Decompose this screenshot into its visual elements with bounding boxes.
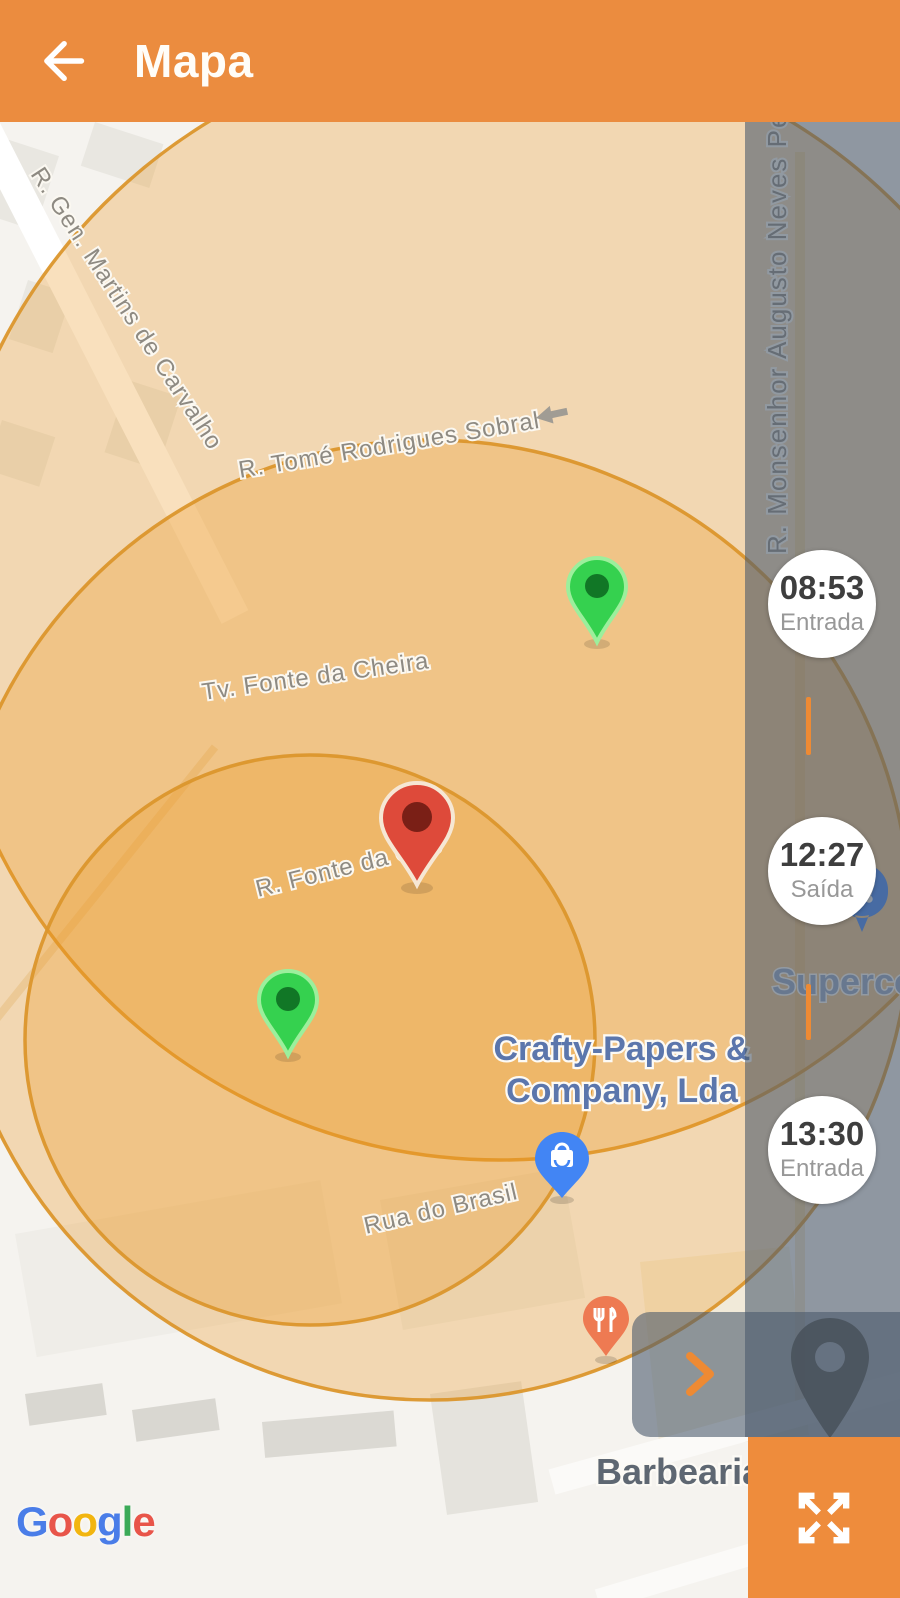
event-time: 13:30 (780, 1117, 864, 1152)
google-logo-letter: o (72, 1498, 97, 1545)
map-screen: R. Gen. Martins de Carvalho R. Tomé Rodr… (0, 0, 900, 1598)
google-logo-letter: o (48, 1498, 73, 1545)
poi-label-shop-line2[interactable]: Company, Lda (506, 1072, 739, 1110)
fullscreen-button[interactable] (748, 1437, 900, 1598)
page-title: Mapa (134, 34, 254, 88)
place-pin-icon (788, 1316, 872, 1440)
arrow-left-icon (36, 35, 88, 87)
event-time: 08:53 (780, 571, 864, 606)
google-logo-letter: g (97, 1498, 122, 1545)
poi-label-shop-line1[interactable]: Crafty-Papers & (494, 1030, 751, 1068)
app-bar: Mapa (0, 0, 900, 122)
chevron-right-icon (670, 1344, 730, 1404)
timeline-event-3[interactable]: 13:30 Entrada (768, 1096, 876, 1204)
event-label: Saída (791, 876, 854, 904)
google-logo-letter: G (16, 1498, 48, 1545)
event-label: Entrada (780, 1155, 864, 1183)
timeline-connector-2 (806, 984, 811, 1040)
timeline-event-1[interactable]: 08:53 Entrada (768, 550, 876, 658)
google-logo[interactable]: Google (16, 1498, 155, 1546)
expand-timeline-button[interactable] (670, 1344, 730, 1404)
fullscreen-expand-icon (786, 1480, 862, 1556)
place-pin[interactable] (788, 1316, 872, 1445)
timeline-connector-1 (806, 697, 811, 755)
timeline-scrim (745, 122, 900, 1437)
google-logo-letter: l (122, 1498, 133, 1545)
google-logo-letter: e (132, 1498, 154, 1545)
timeline-event-2[interactable]: 12:27 Saída (768, 817, 876, 925)
event-label: Entrada (780, 609, 864, 637)
event-time: 12:27 (780, 838, 864, 873)
back-button[interactable] (14, 13, 110, 109)
